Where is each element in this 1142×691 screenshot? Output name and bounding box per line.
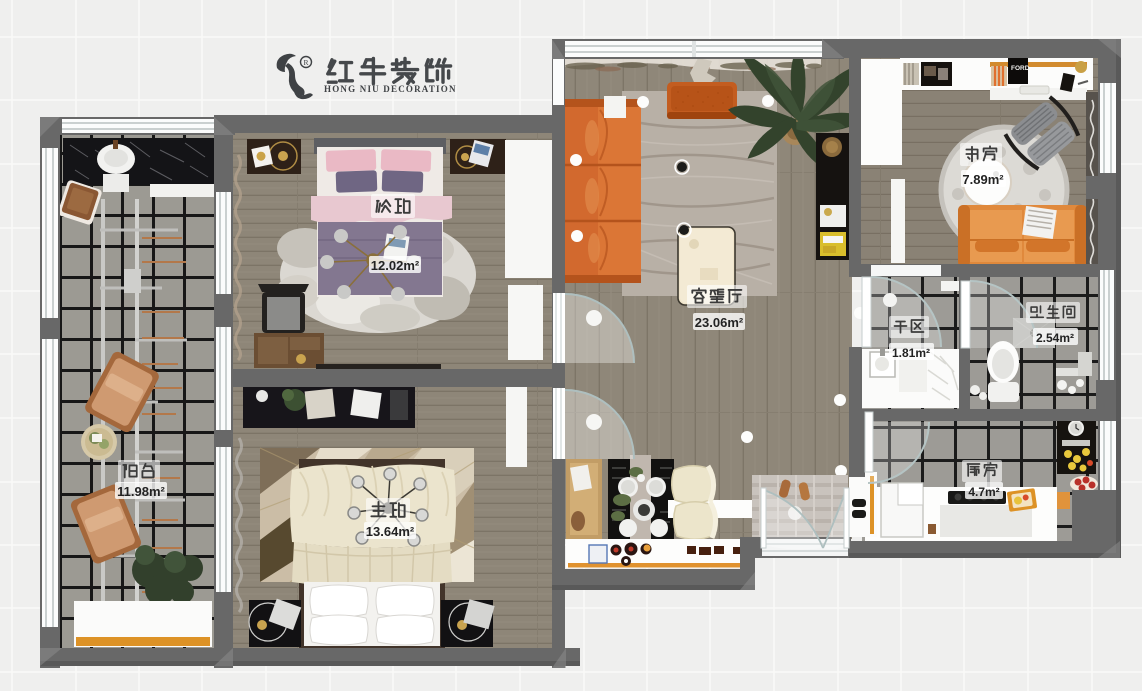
svg-text:13.64m²: 13.64m²: [366, 524, 415, 539]
svg-text:R: R: [303, 58, 308, 67]
svg-text:4.7m²: 4.7m²: [968, 485, 999, 499]
svg-text:11.98m²: 11.98m²: [117, 484, 165, 499]
svg-text:HONG NIU DECORATION: HONG NIU DECORATION: [324, 84, 457, 94]
svg-text:2.54m²: 2.54m²: [1036, 331, 1074, 345]
svg-text:1.81m²: 1.81m²: [892, 346, 930, 360]
svg-text:23.06m²: 23.06m²: [695, 315, 744, 330]
svg-text:7.89m²: 7.89m²: [962, 172, 1004, 187]
svg-text:12.02m²: 12.02m²: [371, 258, 420, 273]
svg-text:FORD: FORD: [1011, 65, 1030, 72]
